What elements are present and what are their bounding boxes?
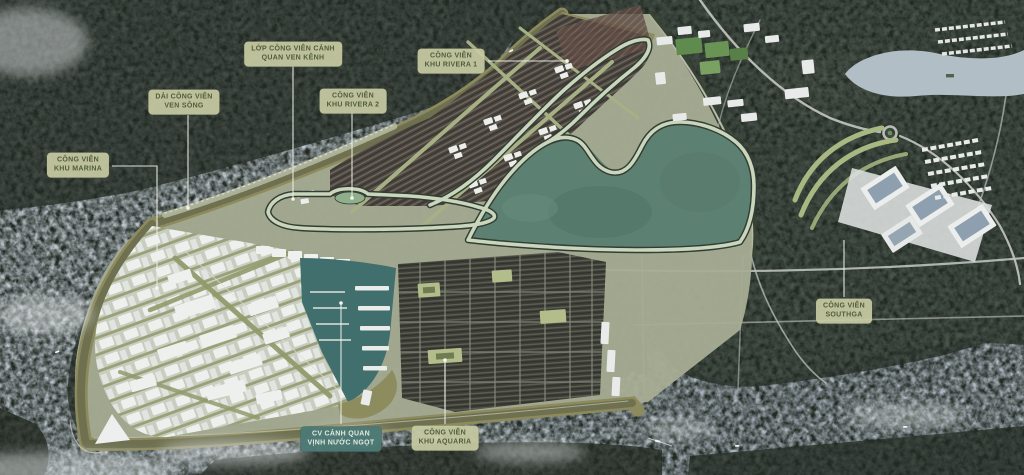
label-line: CÔNG VIÊN — [419, 429, 472, 438]
label-line: KHU MARINA — [54, 165, 102, 174]
label-line: CV CẢNH QUAN — [308, 430, 375, 439]
label-rivera-1-park: CÔNG VIÊN KHU RIVERA 1 — [418, 49, 485, 74]
label-line: CÔNG VIÊN — [425, 52, 478, 61]
label-line: SOUTHGA — [823, 311, 865, 320]
label-line: QUAN VEN KÊNH — [251, 54, 335, 63]
label-canal-park: LỚP CÔNG VIÊN CẢNH QUAN VEN KÊNH — [244, 42, 342, 67]
label-line: LỚP CÔNG VIÊN CẢNH — [251, 45, 335, 54]
label-line: VỊNH NƯỚC NGỌT — [308, 439, 375, 448]
canal-island — [335, 192, 365, 204]
label-rivera-2-park: CÔNG VIÊN KHU RIVERA 2 — [320, 89, 387, 114]
label-line: CÔNG VIÊN — [327, 92, 380, 101]
label-line: VEN SÔNG — [155, 102, 212, 111]
label-freshwater-bay-park: CV CẢNH QUAN VỊNH NƯỚC NGỌT — [301, 427, 382, 452]
label-line: KHU AQUARIA — [419, 438, 472, 447]
masterplan-scene — [0, 0, 1024, 475]
label-southgate-park: CÔNG VIÊN SOUTHGA — [816, 299, 872, 324]
label-line: KHU RIVERA 2 — [327, 101, 380, 110]
label-riverside-park: DẢI CÔNG VIÊN VEN SÔNG — [148, 90, 219, 115]
masterplan-canvas: LỚP CÔNG VIÊN CẢNH QUAN VEN KÊNH DẢI CÔN… — [0, 0, 1024, 475]
label-marina-park: CÔNG VIÊN KHU MARINA — [47, 153, 109, 178]
label-line: CÔNG VIÊN — [823, 302, 865, 311]
park-shade — [660, 152, 740, 212]
label-aquaria-park: CÔNG VIÊN KHU AQUARIA — [412, 426, 479, 451]
lake-island — [946, 74, 954, 77]
label-line: DẢI CÔNG VIÊN — [155, 93, 212, 102]
park-shade — [548, 186, 652, 238]
label-line: CÔNG VIÊN — [54, 156, 102, 165]
label-line: KHU RIVERA 1 — [425, 61, 478, 70]
park-meadow — [502, 194, 558, 222]
